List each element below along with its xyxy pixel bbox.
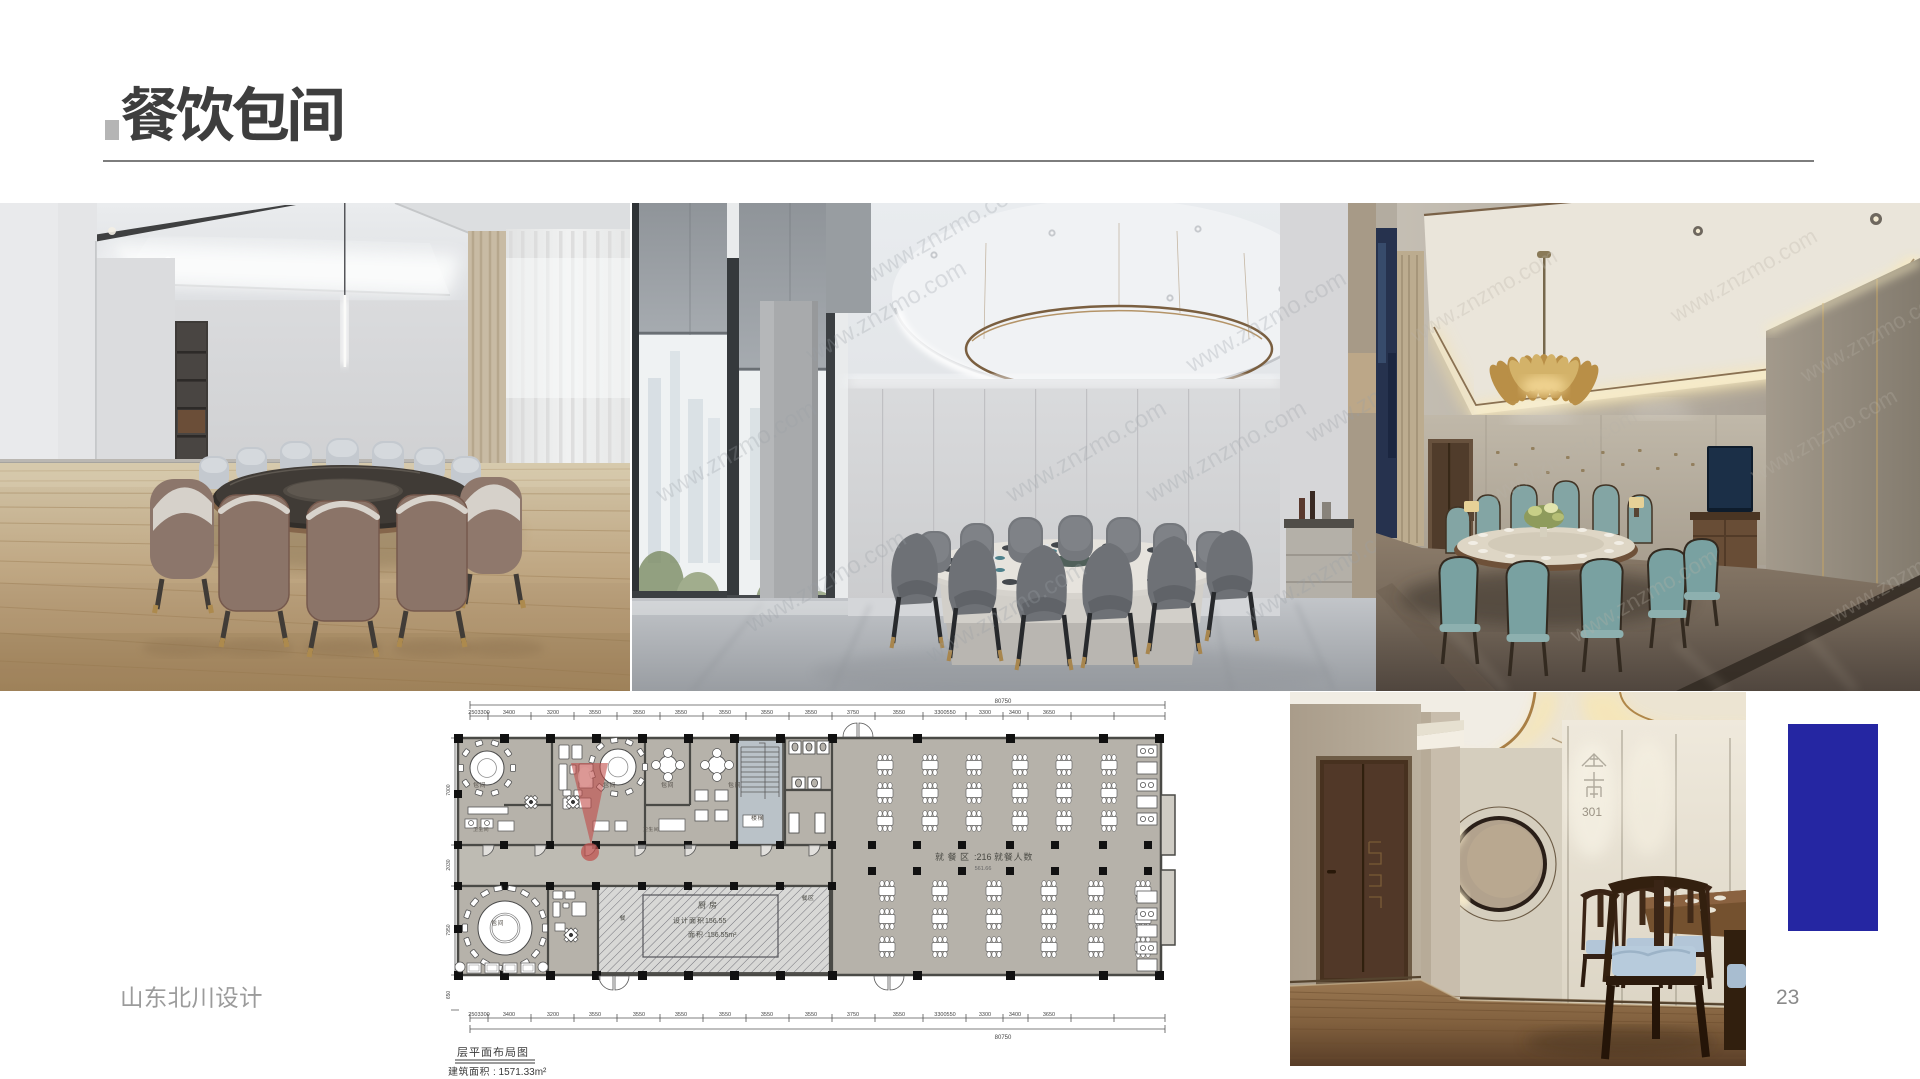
svg-text:2030: 2030: [446, 859, 452, 870]
svg-text::156.55m²: :156.55m²: [705, 932, 737, 939]
svg-text:3550: 3550: [761, 710, 773, 716]
svg-text:3550: 3550: [589, 1012, 601, 1018]
svg-text:3550: 3550: [589, 710, 601, 716]
svg-text:3550: 3550: [719, 710, 731, 716]
svg-text:3300550: 3300550: [934, 1012, 955, 1018]
svg-text:301: 301: [1582, 805, 1602, 819]
svg-text:2503300: 2503300: [468, 710, 489, 716]
svg-text:3550: 3550: [761, 1012, 773, 1018]
svg-text:7950: 7950: [446, 924, 452, 935]
svg-text:3550: 3550: [805, 1012, 817, 1018]
svg-text:650: 650: [446, 991, 452, 1000]
svg-text:3400: 3400: [1009, 1012, 1021, 1018]
svg-text:3750: 3750: [847, 710, 859, 716]
svg-text:3400: 3400: [503, 1012, 515, 1018]
svg-text:3650: 3650: [1043, 710, 1055, 716]
svg-text:3400: 3400: [503, 710, 515, 716]
svg-text:3650: 3650: [1043, 1012, 1055, 1018]
svg-text:3300: 3300: [979, 710, 991, 716]
svg-text:3750: 3750: [847, 1012, 859, 1018]
svg-text:3300550: 3300550: [934, 710, 955, 716]
svg-text:3550: 3550: [893, 1012, 905, 1018]
svg-text:: 1571.33m²: : 1571.33m²: [493, 1067, 547, 1078]
svg-text:3300: 3300: [979, 1012, 991, 1018]
svg-text::216: :216: [974, 852, 992, 862]
svg-text:3550: 3550: [675, 710, 687, 716]
svg-text:3200: 3200: [547, 1012, 559, 1018]
svg-text:7000: 7000: [446, 784, 452, 795]
svg-text:156.55: 156.55: [705, 918, 727, 925]
svg-text:2503300: 2503300: [468, 1012, 489, 1018]
svg-text:3200: 3200: [547, 710, 559, 716]
svg-text:3550: 3550: [633, 710, 645, 716]
svg-text:3550: 3550: [633, 1012, 645, 1018]
svg-text:3550: 3550: [675, 1012, 687, 1018]
svg-text:3550: 3550: [893, 710, 905, 716]
svg-text:561.66: 561.66: [975, 866, 992, 872]
svg-text:80750: 80750: [995, 1035, 1012, 1041]
svg-text:3550: 3550: [719, 1012, 731, 1018]
svg-text:80750: 80750: [995, 699, 1012, 705]
svg-text:3550: 3550: [805, 710, 817, 716]
svg-text:3400: 3400: [1009, 710, 1021, 716]
